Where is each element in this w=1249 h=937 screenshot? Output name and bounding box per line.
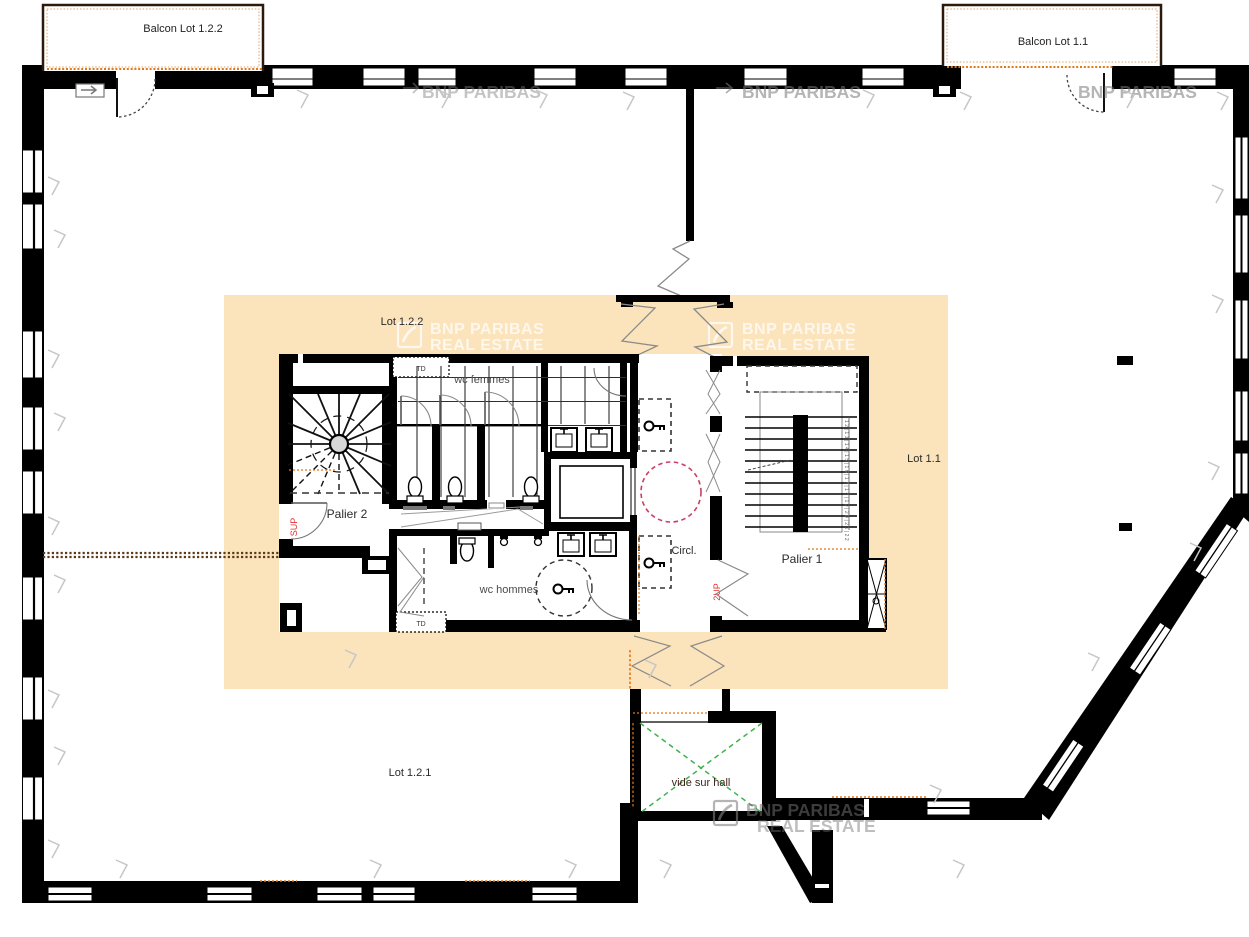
svg-text:REAL ESTATE: REAL ESTATE	[757, 816, 876, 836]
svg-text:Palier 1: Palier 1	[782, 552, 823, 566]
svg-text:12|13|14|15|16|17|18|19|20|21|: 12|13|14|15|16|17|18|19|20|21|22	[843, 420, 849, 542]
svg-text:BNP PARIBAS: BNP PARIBAS	[742, 321, 856, 338]
svg-text:BNP PARIBAS: BNP PARIBAS	[742, 82, 861, 102]
svg-text:TD: TD	[416, 621, 425, 628]
svg-text:REAL ESTATE: REAL ESTATE	[430, 337, 544, 354]
svg-text:Balcon Lot 1.2.2: Balcon Lot 1.2.2	[143, 23, 223, 35]
svg-text:2UP: 2UP	[712, 583, 722, 601]
svg-text:wc hommes: wc hommes	[479, 584, 539, 596]
svg-text:TD: TD	[416, 366, 425, 373]
svg-text:Circl.: Circl.	[671, 545, 696, 557]
svg-text:wc femmes: wc femmes	[453, 374, 510, 386]
svg-text:Balcon Lot 1.1: Balcon Lot 1.1	[1018, 36, 1088, 48]
svg-text:Palier 2: Palier 2	[327, 507, 368, 521]
svg-text:SUP: SUP	[289, 518, 299, 537]
svg-text:Lot 1.1: Lot 1.1	[907, 453, 941, 465]
svg-text:BNP PARIBAS: BNP PARIBAS	[422, 82, 541, 102]
svg-text:BNP PARIBAS: BNP PARIBAS	[1078, 82, 1197, 102]
svg-text:BNP PARIBAS: BNP PARIBAS	[430, 321, 544, 338]
svg-text:REAL ESTATE: REAL ESTATE	[742, 337, 856, 354]
svg-text:Lot 1.2.2: Lot 1.2.2	[381, 316, 424, 328]
svg-text:Lot 1.2.1: Lot 1.2.1	[389, 767, 432, 779]
svg-text:vide sur hall: vide sur hall	[672, 777, 731, 789]
